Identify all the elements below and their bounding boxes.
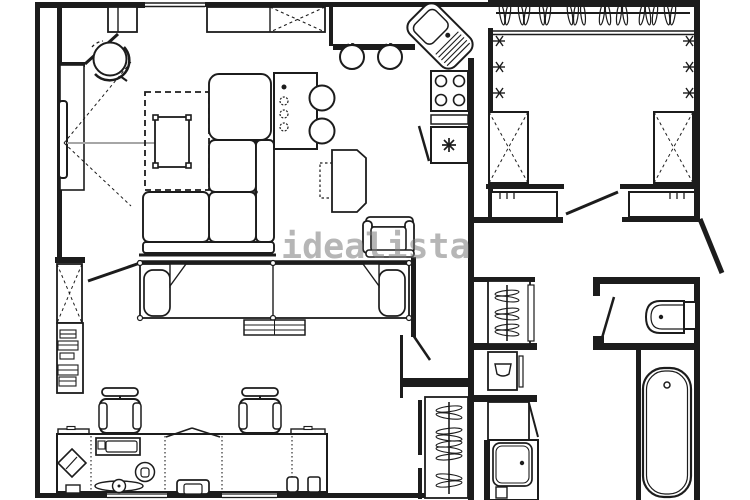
- wall-wc-bottom: [593, 343, 700, 350]
- crossed-wardrobe-left: [489, 112, 528, 183]
- kitchen: [340, 0, 477, 163]
- wall-wc-left-stub-upper: [593, 277, 600, 296]
- office-desk: [57, 427, 327, 495]
- wall-hall-divider-2: [474, 395, 537, 402]
- sofa-seat: [143, 192, 209, 242]
- wall-coat-closet-left-b: [418, 468, 422, 499]
- desk-tray: [66, 485, 80, 493]
- wall-bedroom-right-upper: [411, 257, 416, 337]
- bedroom-hall-door: [413, 335, 430, 360]
- sofa-chaise: [209, 74, 271, 140]
- bed-bench: [244, 320, 305, 335]
- window-bottom-left: [107, 493, 167, 500]
- speaker: [308, 477, 320, 492]
- wall-cabinet-row: [207, 7, 325, 32]
- wall-wc-top: [593, 277, 700, 284]
- wall-hooks: [493, 36, 695, 98]
- floor-plan: idealista: [0, 0, 750, 500]
- office-chair: [239, 388, 281, 433]
- coffee-table: [153, 115, 191, 168]
- bathroom: [643, 301, 696, 497]
- wall-bedroom-stub: [55, 257, 85, 263]
- counter-stool: [378, 45, 402, 69]
- walkin-closet: [486, 3, 698, 218]
- counter-shelf: [431, 115, 468, 124]
- dresser-right: [620, 184, 698, 217]
- laundry-sink: [489, 440, 538, 500]
- laptop: [177, 480, 209, 494]
- bookshelf: [57, 323, 83, 393]
- stove-4-burner: [431, 71, 468, 111]
- appliance-symbol: [442, 138, 456, 152]
- wall-kitchen-left: [329, 2, 333, 46]
- wc-door: [602, 297, 614, 338]
- sofa-front-edge: [143, 242, 274, 253]
- bathtub: [643, 368, 691, 497]
- wall-bedroom-right-lower: [400, 335, 403, 398]
- bar-stool: [310, 119, 335, 144]
- closet-door: [566, 192, 618, 214]
- laundry-cabinet: [488, 402, 538, 440]
- swivel-chair: [92, 41, 129, 81]
- sofa-seat: [209, 140, 256, 192]
- window-bottom-right: [222, 493, 277, 500]
- side-unit: [320, 150, 366, 212]
- dresser-left: [486, 184, 564, 218]
- bedroom-door: [88, 263, 140, 281]
- wall-bath-left: [636, 350, 641, 500]
- entry-column: [108, 7, 137, 32]
- pillow: [144, 270, 170, 316]
- pillow: [379, 270, 405, 316]
- bar-stool: [310, 86, 335, 111]
- office-chair: [99, 388, 141, 433]
- crossed-wardrobe-right: [654, 112, 693, 183]
- coat-closet: [425, 397, 468, 498]
- counter-stool: [340, 45, 364, 69]
- sofa-back: [256, 140, 274, 242]
- kitchen-appliance: [431, 127, 468, 163]
- window-top: [145, 3, 205, 7]
- kitchen-corner-sink: [403, 0, 477, 73]
- boiler-closet: [488, 352, 523, 390]
- hall-wardrobe: [488, 281, 534, 344]
- toilet: [646, 301, 696, 333]
- printer: [96, 438, 140, 455]
- speaker: [287, 477, 298, 492]
- living-room: [59, 7, 366, 255]
- sofa-seat: [209, 192, 256, 242]
- idealista-watermark: idealista: [281, 227, 481, 267]
- wall-right-diagonal: [700, 219, 722, 273]
- hallway-units: [425, 281, 538, 500]
- double-bed: [138, 261, 412, 321]
- wall-left-outer: [35, 2, 40, 498]
- wall-bedroom-hall: [403, 378, 468, 387]
- wall-coat-closet-left-a: [418, 400, 422, 455]
- tv: [59, 101, 67, 178]
- desk-phone: [136, 463, 155, 482]
- crossed-cabinet: [57, 264, 82, 323]
- kitchen-door: [419, 126, 429, 161]
